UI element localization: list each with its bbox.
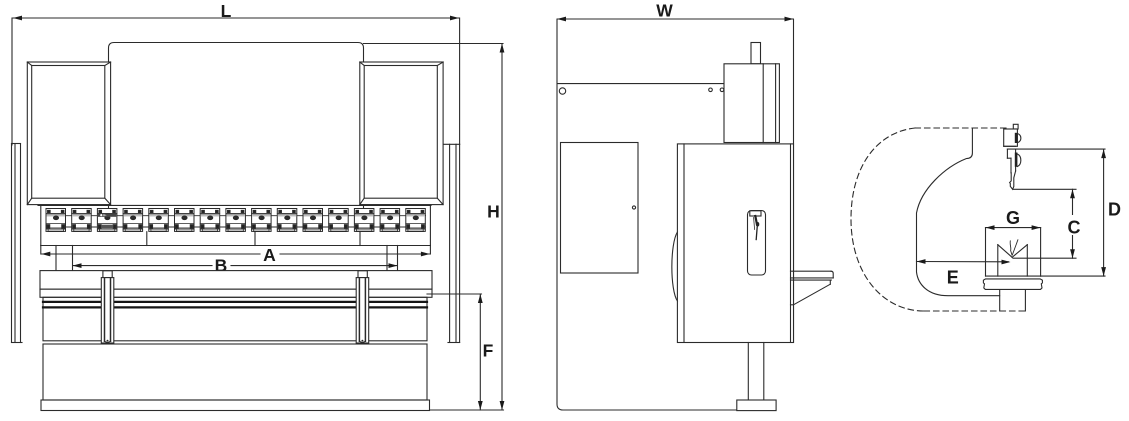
svg-text:F: F bbox=[483, 341, 494, 361]
svg-text:G: G bbox=[1006, 208, 1020, 228]
svg-text:E: E bbox=[947, 268, 959, 288]
svg-text:L: L bbox=[221, 1, 232, 21]
svg-text:A: A bbox=[263, 245, 276, 265]
svg-text:W: W bbox=[656, 1, 673, 21]
svg-text:C: C bbox=[1068, 218, 1081, 238]
svg-text:D: D bbox=[1108, 200, 1121, 220]
svg-text:H: H bbox=[487, 202, 500, 222]
